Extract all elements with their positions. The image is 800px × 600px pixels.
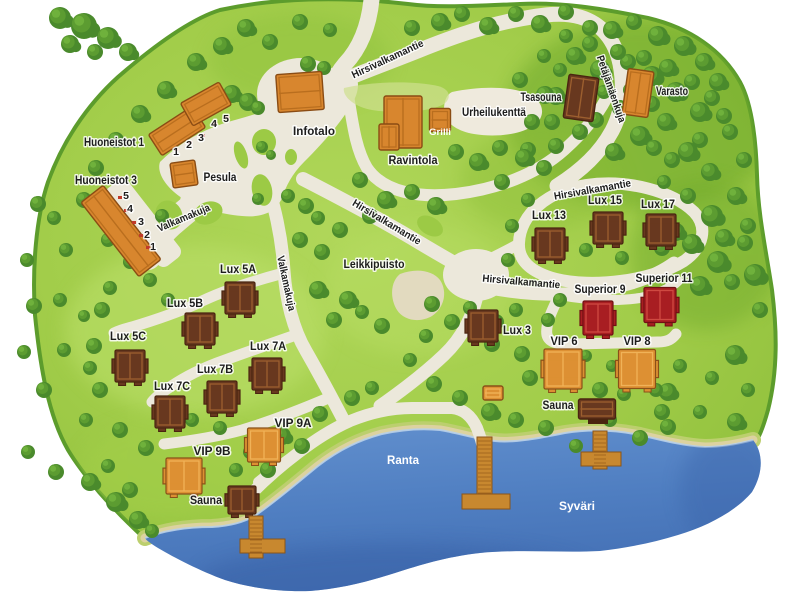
svg-text:VIP 9A: VIP 9A: [275, 418, 312, 430]
svg-text:2: 2: [186, 139, 192, 151]
svg-text:1: 1: [150, 241, 156, 253]
svg-text:4: 4: [211, 118, 217, 130]
svg-text:Lux 7B: Lux 7B: [197, 364, 233, 376]
svg-text:Lux 3: Lux 3: [503, 325, 531, 337]
svg-text:2: 2: [144, 229, 150, 241]
svg-text:Lux 15: Lux 15: [588, 195, 623, 207]
svg-text:5: 5: [223, 113, 229, 125]
svg-text:5: 5: [123, 190, 129, 202]
svg-text:Pesula: Pesula: [204, 172, 238, 184]
svg-text:Syväri: Syväri: [559, 501, 595, 513]
svg-text:1: 1: [173, 146, 179, 158]
svg-text:VIP 6: VIP 6: [551, 336, 578, 348]
svg-text:Sauna: Sauna: [190, 495, 223, 507]
svg-text:Ravintola: Ravintola: [389, 155, 439, 167]
svg-text:Varasto: Varasto: [656, 86, 688, 98]
svg-text:Lux 5C: Lux 5C: [110, 331, 146, 343]
svg-text:VIP 8: VIP 8: [624, 336, 652, 348]
svg-text:Huoneistot 1: Huoneistot 1: [84, 137, 145, 149]
svg-text:Infotalo: Infotalo: [293, 126, 335, 138]
svg-text:Superior 9: Superior 9: [575, 284, 626, 296]
svg-text:Sauna: Sauna: [543, 400, 575, 412]
svg-text:Ranta: Ranta: [387, 455, 420, 467]
svg-text:Lux 13: Lux 13: [532, 210, 566, 222]
svg-text:Urheilukenttä: Urheilukenttä: [462, 107, 527, 119]
svg-text:Leikkipuisto: Leikkipuisto: [344, 259, 405, 271]
svg-text:Lux 5A: Lux 5A: [220, 264, 256, 276]
svg-text:Lux 5B: Lux 5B: [167, 298, 203, 310]
svg-text:3: 3: [198, 132, 204, 144]
svg-text:VIP 9B: VIP 9B: [194, 446, 231, 458]
svg-text:Lux 17: Lux 17: [641, 199, 675, 211]
svg-text:Grilli: Grilli: [429, 127, 451, 137]
svg-text:Superior 11: Superior 11: [636, 273, 694, 285]
svg-text:Lux 7A: Lux 7A: [250, 341, 286, 353]
svg-text:3: 3: [138, 216, 144, 228]
svg-text:Lux 7C: Lux 7C: [154, 381, 190, 393]
svg-text:Tsasouna: Tsasouna: [521, 92, 562, 104]
svg-text:Huoneistot 3: Huoneistot 3: [75, 175, 137, 187]
svg-text:4: 4: [127, 203, 133, 215]
